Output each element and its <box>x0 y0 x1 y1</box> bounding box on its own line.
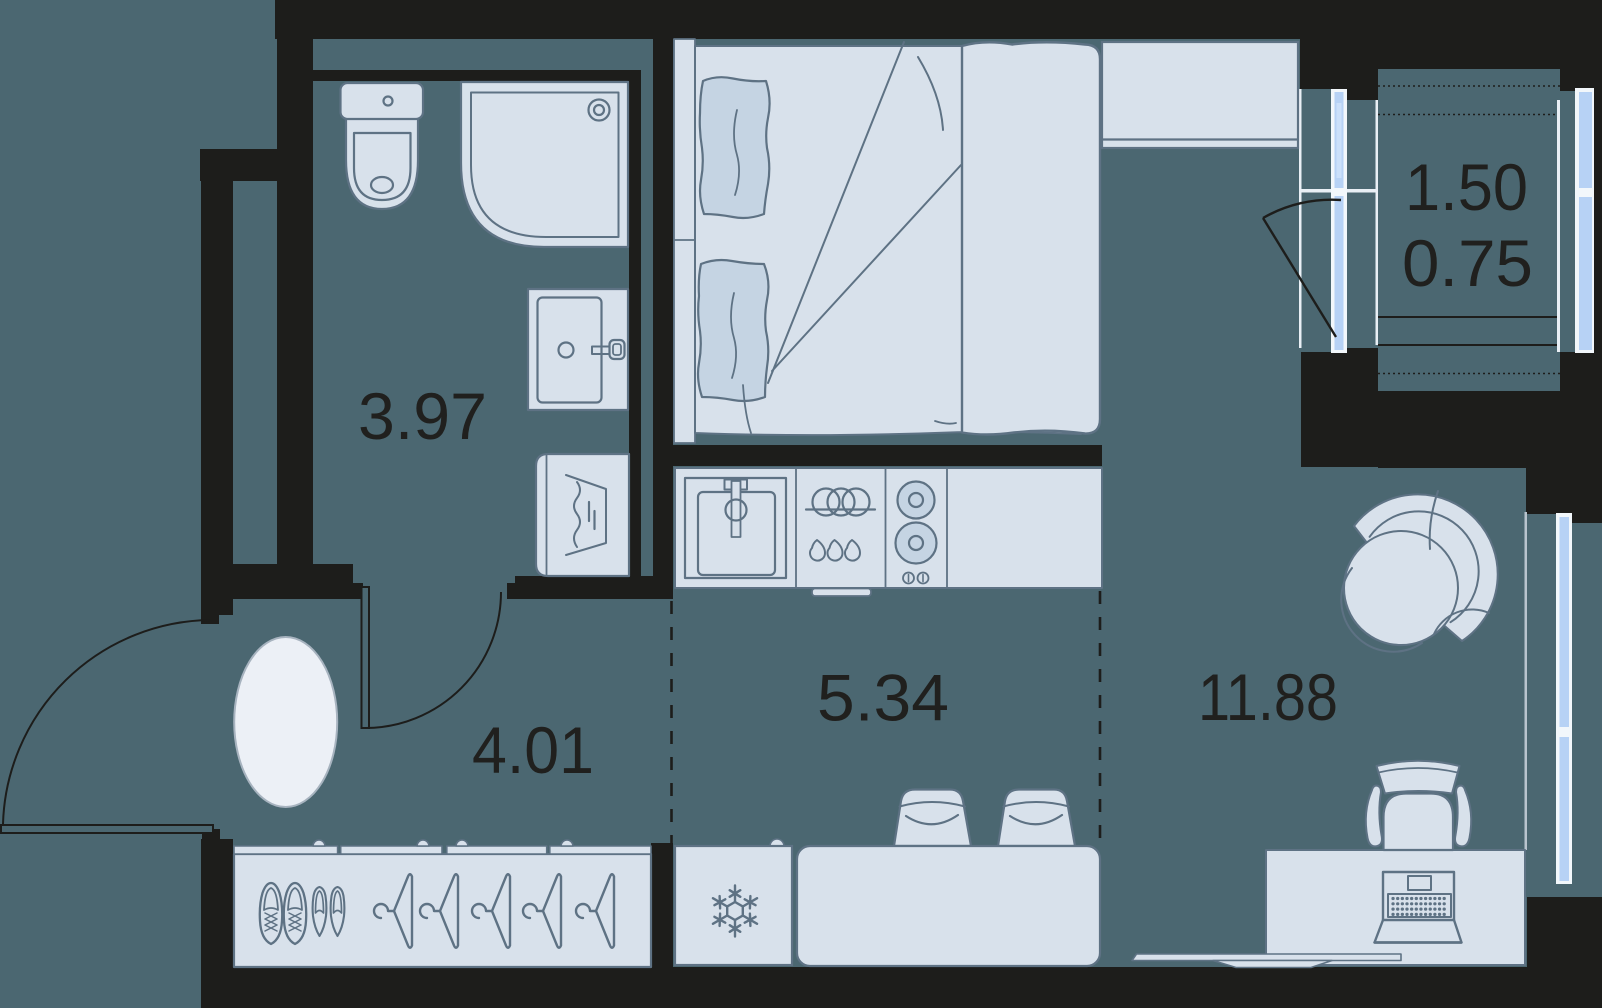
svg-text:5.34: 5.34 <box>817 661 949 735</box>
svg-text:1.50: 1.50 <box>1405 150 1528 224</box>
svg-text:11.88: 11.88 <box>1198 660 1338 734</box>
svg-text:3.97: 3.97 <box>358 379 487 453</box>
svg-text:0.75: 0.75 <box>1402 226 1533 300</box>
svg-text:4.01: 4.01 <box>472 713 594 787</box>
